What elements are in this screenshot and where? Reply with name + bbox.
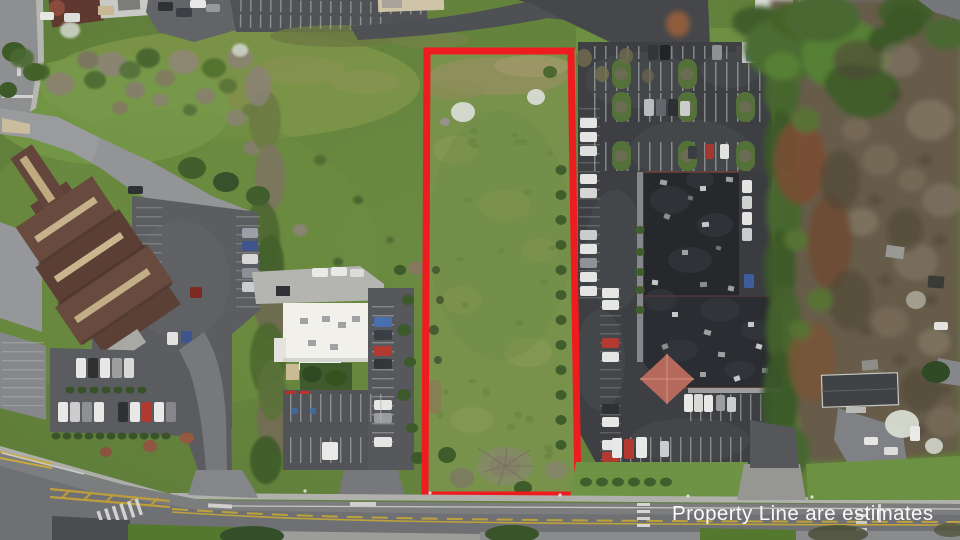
svg-text:Property Line are estimates: Property Line are estimates [672, 502, 933, 525]
